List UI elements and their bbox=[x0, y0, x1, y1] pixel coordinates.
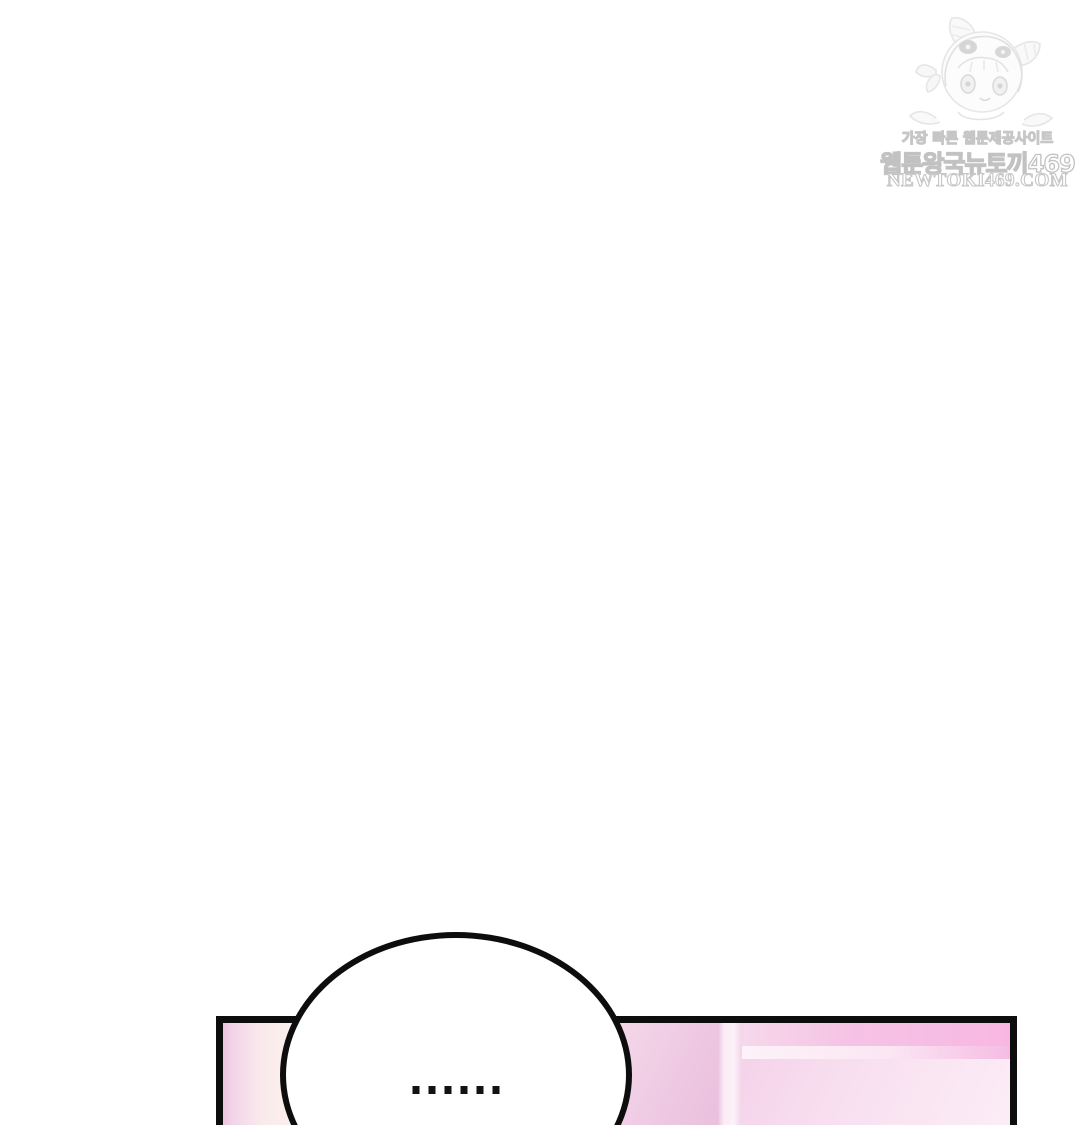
ellipsis-dot bbox=[445, 1086, 452, 1094]
ellipsis-dot bbox=[461, 1086, 468, 1094]
bunny-hood-girl-mascot-icon bbox=[902, 14, 1058, 132]
ellipsis-dot bbox=[429, 1086, 436, 1094]
speech-bubble-ellipsis bbox=[413, 1086, 500, 1094]
panel-vertical-strip bbox=[718, 1023, 742, 1125]
speech-bubble bbox=[280, 932, 632, 1125]
ellipsis-dot bbox=[477, 1086, 484, 1094]
panel-top-band bbox=[742, 1023, 1010, 1046]
panel-right-background bbox=[742, 1023, 1010, 1125]
panel-light-stripe bbox=[742, 1046, 1010, 1059]
ellipsis-dot bbox=[493, 1086, 500, 1094]
watermark-domain: NEWTOKI469.COM bbox=[875, 170, 1080, 192]
webtoon-page: 가장 빠른 웹툰제공사이트 웹툰왕국뉴토끼469 NEWTOKI469.COM bbox=[0, 0, 1080, 1125]
ellipsis-dot bbox=[413, 1086, 420, 1094]
panel-lower-area bbox=[742, 1059, 1010, 1125]
site-watermark: 가장 빠른 웹툰제공사이트 웹툰왕국뉴토끼469 NEWTOKI469.COM bbox=[890, 10, 1070, 195]
